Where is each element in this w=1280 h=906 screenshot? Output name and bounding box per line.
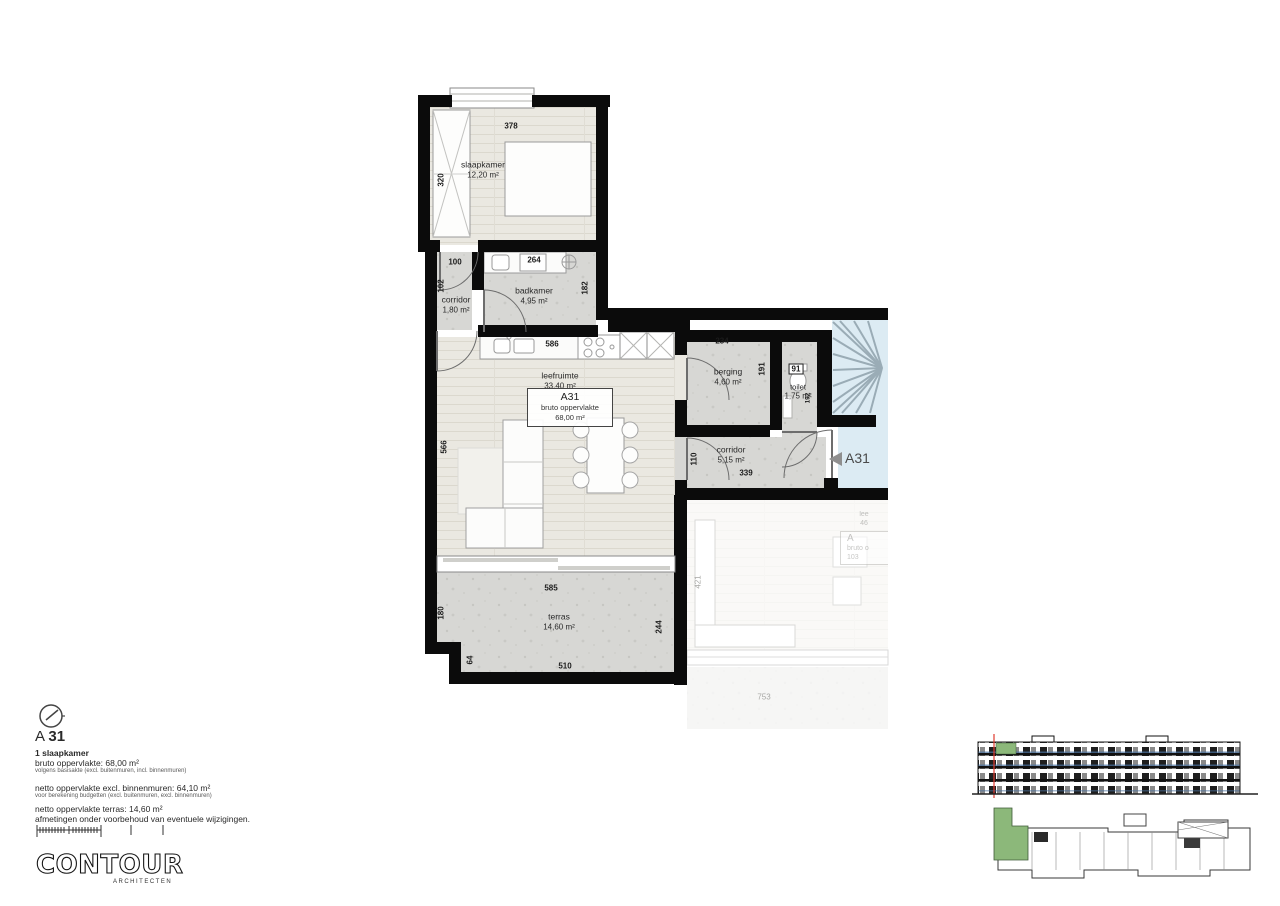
dim-label: 244 xyxy=(655,620,664,633)
logo-wordmark: CONTOUR xyxy=(36,850,183,880)
dim-label: 191 xyxy=(758,362,767,375)
logo-subtitle: ARCHITECTEN xyxy=(113,879,172,885)
unit-subtitle: 1 slaapkamer xyxy=(35,748,89,758)
dim-label: 180 xyxy=(437,606,446,619)
unit-title: A 31 xyxy=(35,728,65,745)
dim-label: 753 xyxy=(757,693,770,702)
scale-bar xyxy=(35,825,175,841)
room-label-berging: berging4,60 m² xyxy=(714,367,742,388)
room-label-toilet: toilet1,75 m² xyxy=(784,382,811,401)
dim-label: 234 xyxy=(715,337,728,346)
dim-label: 182 xyxy=(581,281,590,294)
contour-logo: CONTOUR ARCHITECTEN xyxy=(35,845,185,889)
legend-row: bruto oppervlakte: 68,00 m² xyxy=(35,758,139,768)
dim-label: 586 xyxy=(545,340,558,349)
dim-label: 264 xyxy=(527,256,540,265)
room-corridor2 xyxy=(687,437,826,488)
room-label-corridor2: corridor5,15 m² xyxy=(717,445,746,466)
entrance-label: A31 xyxy=(845,450,870,466)
dim-label: 64 xyxy=(466,656,475,665)
floor-keyplan-thumbnail xyxy=(988,798,1268,898)
dim-label: 339 xyxy=(739,469,752,478)
dim-label: 320 xyxy=(437,173,446,186)
entrance-arrow-icon xyxy=(829,452,842,466)
dining-table xyxy=(587,418,624,493)
washbasin xyxy=(492,255,509,270)
room-label-badkamer: badkamer4,95 m² xyxy=(515,286,553,307)
dim-label: 421 xyxy=(694,575,703,588)
dim-label: 585 xyxy=(544,584,557,593)
dim-label: 102 xyxy=(437,279,446,292)
north-arrow-icon xyxy=(38,703,66,731)
bed xyxy=(505,142,591,216)
dim-label: 100 xyxy=(448,258,461,267)
unit-highlight-keyplan xyxy=(994,808,1028,860)
room-label-slaapkamer: slaapkamer12,20 m² xyxy=(461,160,505,181)
unit-highlight-elevation xyxy=(996,743,1016,754)
dim-label: 110 xyxy=(690,453,699,466)
dim-label: 510 xyxy=(558,662,571,671)
legend-row: voor berekening budgetten (excl. buitenm… xyxy=(35,793,212,799)
legend-row: netto oppervlakte excl. binnenmuren: 64,… xyxy=(35,783,210,793)
room-label-terras: terras14,60 m² xyxy=(543,612,575,633)
legend-row: volgens basisakte (excl. buitenmuren, in… xyxy=(35,768,186,774)
legend-row: netto oppervlakte terras: 14,60 m² xyxy=(35,804,163,814)
unit-area-box: A31 bruto oppervlakte 68,00 m² xyxy=(527,388,613,427)
room-label-corridor1: corridor1,80 m² xyxy=(442,295,471,316)
dim-label: 378 xyxy=(504,122,517,131)
building-elevation-thumbnail xyxy=(970,732,1260,802)
neighbor-partial-labels: lee 46 A bruto o 103 xyxy=(840,510,888,580)
floorplan-sheet: 378 320 100 102 264 182 586 566 234 191 … xyxy=(0,0,1280,906)
dim-label: 91 xyxy=(789,364,804,375)
coffee-table xyxy=(458,448,504,514)
legend-row: afmetingen onder voorbehoud van eventuel… xyxy=(35,814,250,824)
bedroom-window xyxy=(450,88,534,108)
sink xyxy=(494,339,510,353)
dim-label: 566 xyxy=(440,440,449,453)
